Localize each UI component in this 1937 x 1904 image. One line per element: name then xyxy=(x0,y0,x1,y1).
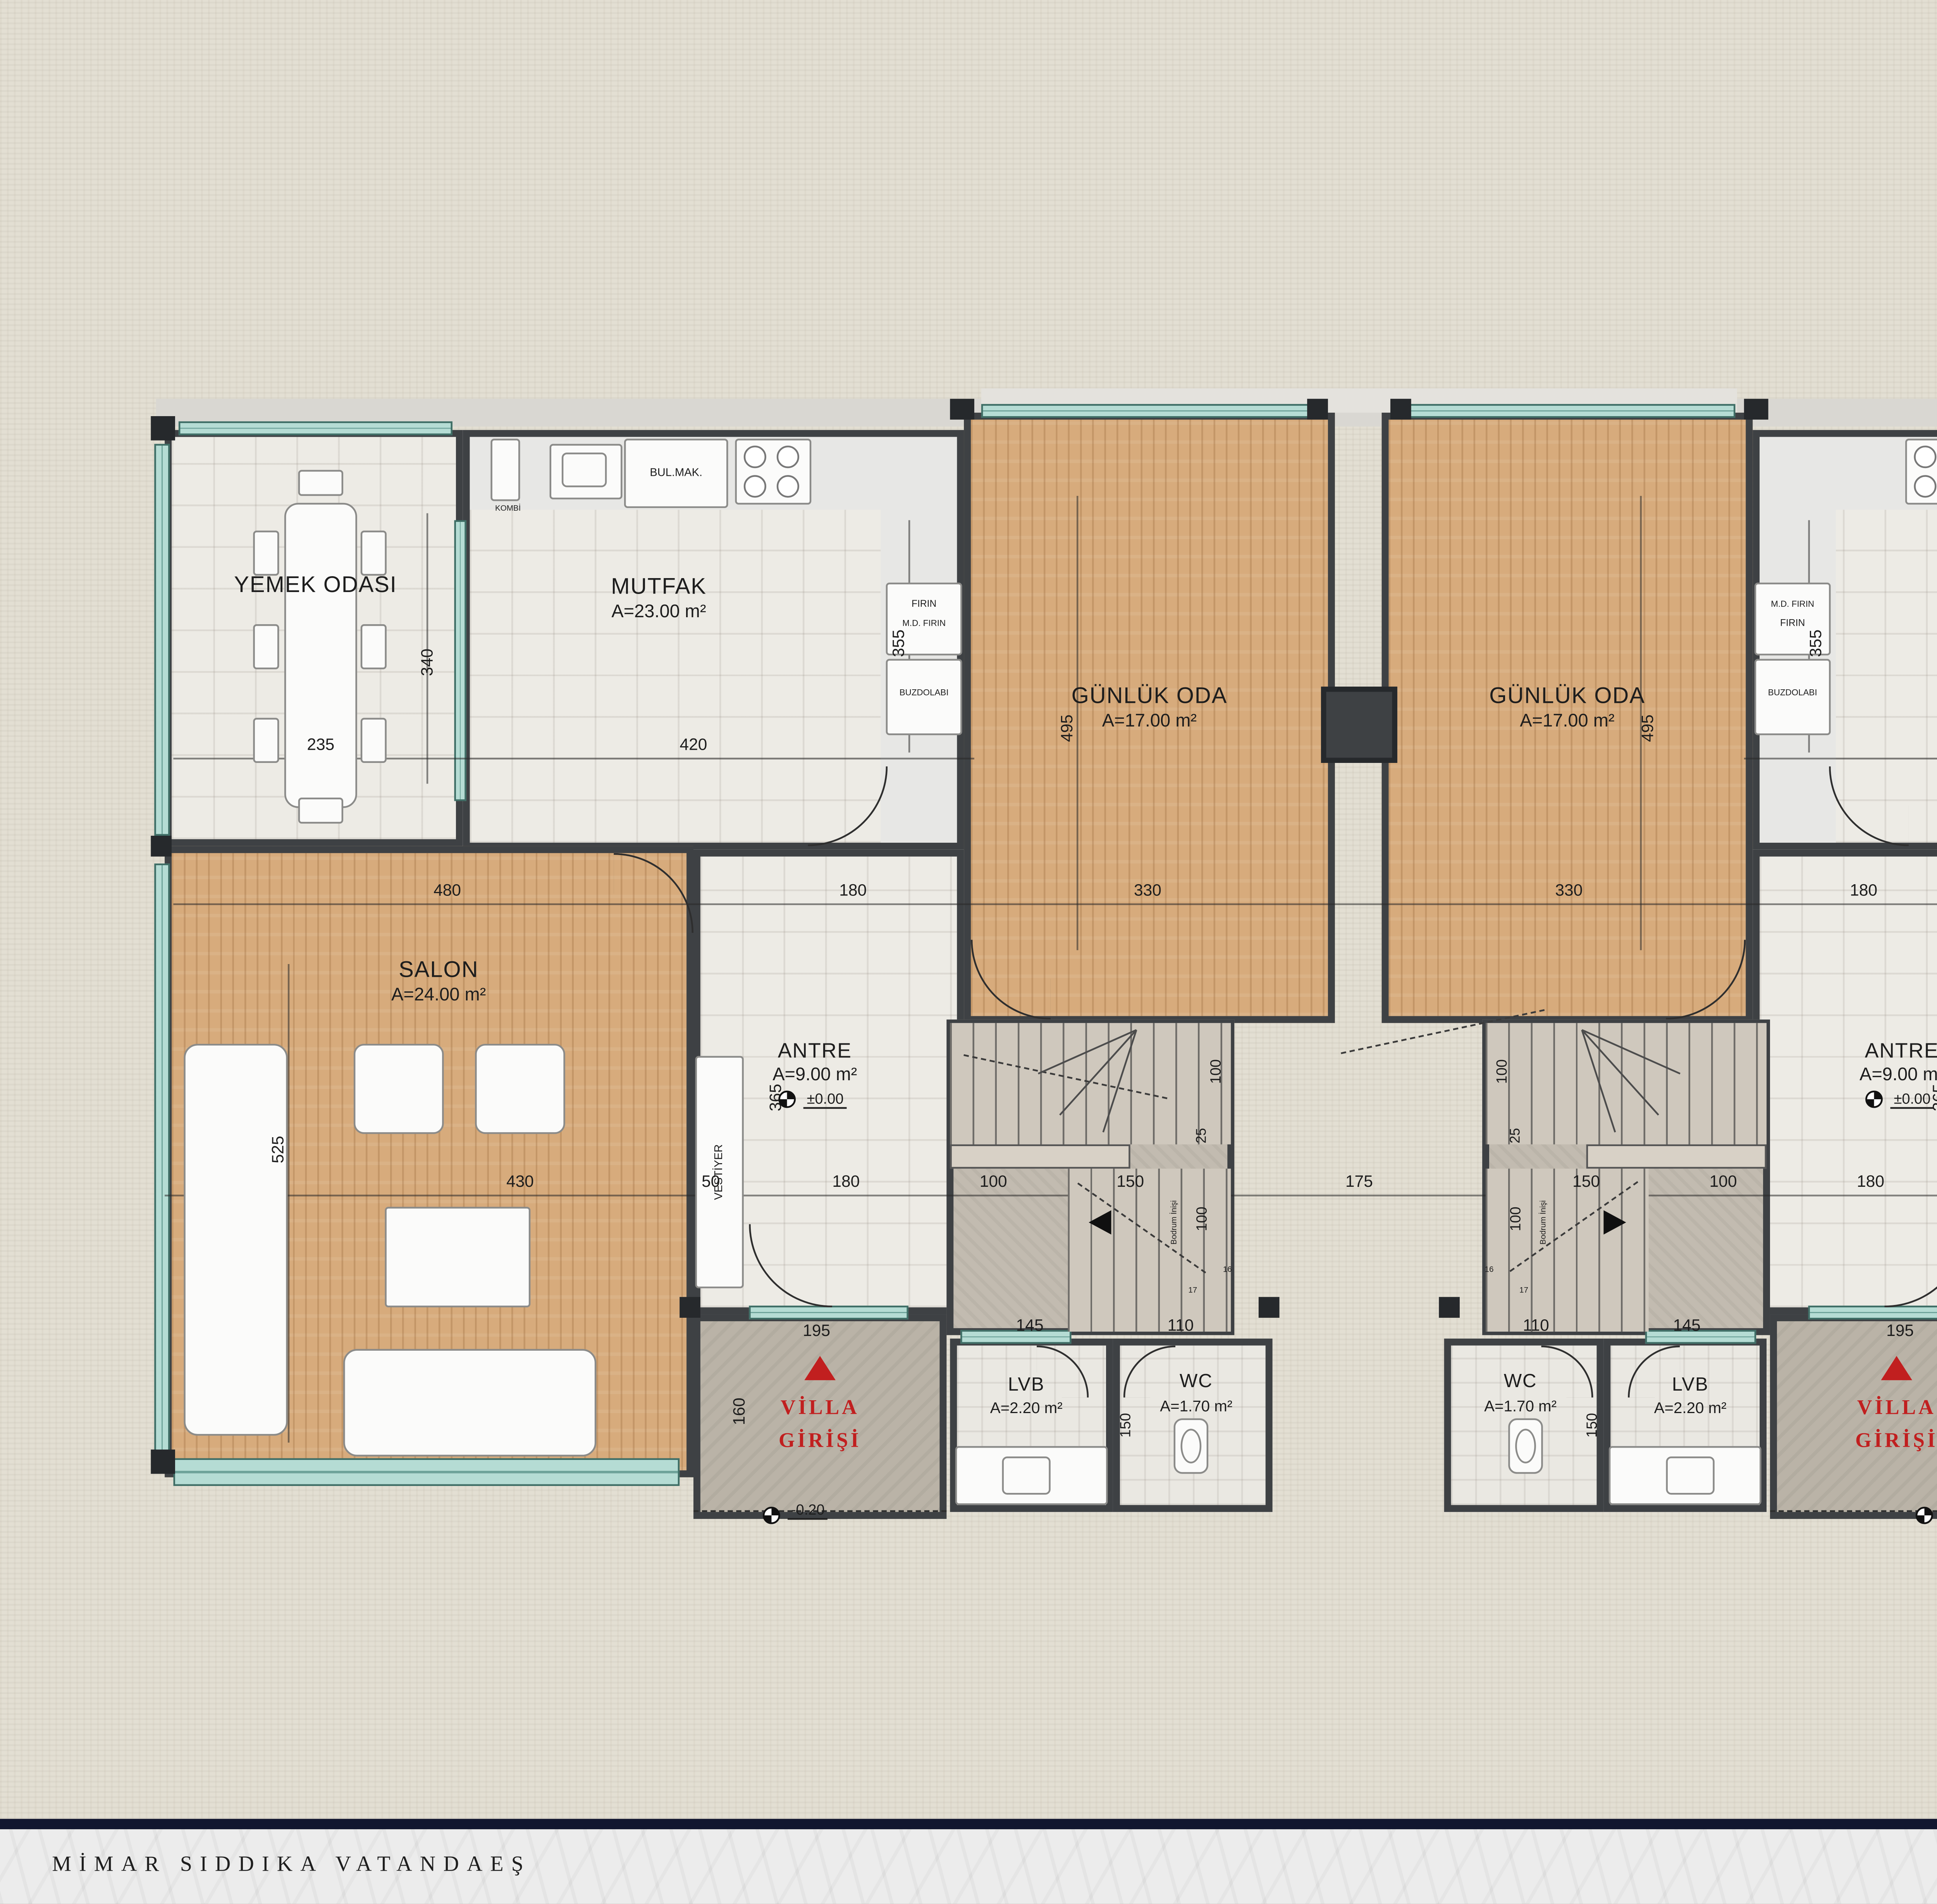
dim-525: 525 xyxy=(270,1136,289,1163)
divider-bar xyxy=(0,1819,1937,1829)
label-giris1-left: VİLLA xyxy=(781,1395,860,1421)
dim-100: 100 xyxy=(1207,1059,1224,1084)
dim-line xyxy=(288,964,289,1443)
elevation-entrance-left: -0.20 xyxy=(788,1501,828,1520)
dim-line xyxy=(165,1195,1937,1196)
area-lvb-left: A=2.20 m² xyxy=(990,1399,1063,1417)
window-yemek-left-side xyxy=(154,444,170,836)
dim-355: 355 xyxy=(890,630,909,657)
dim-100: 100 xyxy=(1710,1173,1737,1192)
dim-235: 235 xyxy=(307,736,334,755)
label-antre-left: ANTRE xyxy=(778,1039,852,1063)
stair-upper-flight-left xyxy=(950,1023,1231,1144)
dim-100: 100 xyxy=(1193,1207,1210,1231)
dim-330: 330 xyxy=(1134,882,1161,901)
dim-430: 430 xyxy=(506,1173,534,1192)
column-block xyxy=(950,399,974,420)
dim-355: 355 xyxy=(1807,630,1826,657)
stair-upper-flight-right xyxy=(1486,1023,1767,1144)
dim-100: 100 xyxy=(1507,1207,1524,1231)
armchair xyxy=(475,1044,565,1134)
elevation-symbol xyxy=(763,1507,780,1524)
label-firin-left: FIRIN xyxy=(912,600,936,610)
lvb-sink xyxy=(1002,1456,1051,1494)
stair-landing-left xyxy=(950,1145,1130,1169)
threshold-right xyxy=(1770,1510,1937,1512)
sofa xyxy=(343,1349,596,1456)
chair xyxy=(298,798,343,824)
label-bodrum-left: Bodrum İnişi xyxy=(1169,1200,1178,1245)
dim-17: 17 xyxy=(1519,1286,1528,1294)
entrance-triangle-right xyxy=(1881,1356,1912,1380)
chair xyxy=(298,470,343,496)
chair xyxy=(361,624,387,669)
elevation-symbol xyxy=(778,1091,796,1108)
entrance-sill-left xyxy=(749,1306,908,1320)
elevation-ground-left: ±0.00 xyxy=(803,1090,847,1109)
column-block xyxy=(1744,399,1768,420)
plan-canvas: YEMEK ODASI MUTFAK A=23.00 m² GÜNLÜK ODA… xyxy=(0,0,1937,1819)
label-wc-right: WC xyxy=(1504,1372,1537,1393)
chair xyxy=(253,718,279,763)
label-firin-right: FIRIN xyxy=(1780,619,1805,630)
dim-150: 150 xyxy=(1116,1413,1134,1437)
dim-100: 100 xyxy=(1493,1059,1510,1084)
stair-direction-arrow xyxy=(1089,1210,1111,1235)
column-block xyxy=(151,416,175,441)
label-buzdolabi-right: BUZDOLABI xyxy=(1768,689,1817,699)
dim-16: 16 xyxy=(1485,1265,1494,1274)
dim-160: 160 xyxy=(731,1398,750,1425)
area-antre-right: A=9.00 m² xyxy=(1860,1065,1937,1086)
window-lvb-right xyxy=(1645,1330,1756,1344)
dim-330: 330 xyxy=(1555,882,1583,901)
dim-150: 150 xyxy=(1583,1413,1600,1437)
dim-110: 110 xyxy=(1168,1317,1194,1336)
party-wall-connector xyxy=(1321,687,1397,763)
dim-180: 180 xyxy=(832,1173,860,1192)
label-antre-right: ANTRE xyxy=(1865,1039,1937,1063)
elevation-symbol xyxy=(1865,1091,1883,1108)
label-bulmak-left: BUL.MAK. xyxy=(650,467,702,479)
dim-340: 340 xyxy=(419,649,438,676)
wc-toilet-bowl xyxy=(1515,1429,1536,1463)
column-block xyxy=(151,836,172,857)
label-salon-left: SALON xyxy=(399,956,478,982)
dim-180: 180 xyxy=(1850,882,1877,901)
stair-landing-right xyxy=(1586,1145,1767,1169)
label-buzdolabi-left: BUZDOLABI xyxy=(900,689,949,699)
label-kombi-left: KOMBİ xyxy=(495,504,521,512)
elevation-symbol xyxy=(1916,1507,1933,1524)
label-gunluk-right: GÜNLÜK ODA xyxy=(1489,682,1645,708)
stair-lower-flight-right xyxy=(1486,1169,1649,1332)
column-block xyxy=(151,1450,175,1474)
elevation-ground-right: ±0.00 xyxy=(1890,1090,1934,1109)
column-block xyxy=(1307,399,1328,420)
window-yemek-left-top xyxy=(179,421,452,435)
dim-420: 420 xyxy=(680,736,707,755)
chair xyxy=(361,718,387,763)
dim-110: 110 xyxy=(1523,1317,1549,1336)
chair xyxy=(253,530,279,575)
area-salon-left: A=24.00 m² xyxy=(391,985,486,1006)
sofa xyxy=(184,1044,288,1436)
kombi-unit xyxy=(490,439,520,501)
coffee-table xyxy=(385,1207,530,1308)
area-wc-right: A=1.70 m² xyxy=(1484,1398,1557,1415)
area-gunluk-right: A=17.00 m² xyxy=(1520,711,1614,732)
dim-480: 480 xyxy=(434,882,461,901)
label-mutfak-left: MUTFAK xyxy=(611,573,707,599)
dim-150: 150 xyxy=(1572,1173,1600,1192)
dim-175: 175 xyxy=(1345,1173,1373,1192)
chair xyxy=(253,624,279,669)
label-mdfirin-right: M.D. FIRIN xyxy=(1771,600,1814,610)
column-block xyxy=(679,1297,700,1318)
area-antre-left: A=9.00 m² xyxy=(772,1065,857,1086)
label-giris1-right: VİLLA xyxy=(1857,1395,1936,1421)
dim-line xyxy=(174,903,1937,905)
label-lvb-right: LVB xyxy=(1672,1375,1709,1396)
dim-180: 180 xyxy=(1857,1173,1884,1192)
armchair xyxy=(354,1044,444,1134)
dim-50: 50 xyxy=(702,1173,720,1192)
entrance-triangle-left xyxy=(804,1356,836,1380)
sink-basin xyxy=(562,453,607,487)
lvb-sink xyxy=(1666,1456,1714,1494)
label-wc-left: WC xyxy=(1180,1372,1213,1393)
window-gunluk-right-top xyxy=(1395,404,1735,418)
stove-icon xyxy=(735,439,811,504)
dim-195: 195 xyxy=(803,1322,830,1341)
area-gunluk-left: A=17.00 m² xyxy=(1102,711,1197,732)
dim-100: 100 xyxy=(980,1173,1007,1192)
architect-name: MİMAR SIDDIKA VATANDAEŞ xyxy=(52,1852,531,1878)
dim-180: 180 xyxy=(839,882,867,901)
label-lvb-left: LVB xyxy=(1008,1375,1045,1396)
column-block xyxy=(1439,1297,1460,1318)
label-giris2-left: GİRİŞİ xyxy=(779,1428,861,1454)
window-salon-left-side xyxy=(154,864,170,1456)
dim-16: 16 xyxy=(1223,1265,1232,1274)
dim-25: 25 xyxy=(1194,1128,1209,1143)
window-salon-left-bottom xyxy=(174,1458,680,1486)
dim-line xyxy=(1744,758,1937,759)
wc-toilet-bowl xyxy=(1180,1429,1201,1463)
dim-17: 17 xyxy=(1188,1286,1197,1294)
dim-150: 150 xyxy=(1116,1173,1144,1192)
column-block xyxy=(1390,399,1411,420)
area-lvb-right: A=2.20 m² xyxy=(1654,1399,1727,1417)
area-mutfak-left: A=23.00 m² xyxy=(611,602,706,623)
label-bodrum-right: Bodrum İnişi xyxy=(1539,1200,1547,1245)
dim-195: 195 xyxy=(1886,1322,1914,1341)
dim-495: 495 xyxy=(1639,714,1658,742)
entrance-sill-right xyxy=(1808,1306,1937,1320)
dim-145: 145 xyxy=(1016,1317,1044,1336)
stair-direction-arrow xyxy=(1603,1210,1626,1235)
footer: MİMAR SIDDIKA VATANDAEŞ GİRAYHAN MİMARLI… xyxy=(0,1829,1937,1904)
label-gunluk-left: GÜNLÜK ODA xyxy=(1072,682,1228,708)
area-wc-left: A=1.70 m² xyxy=(1160,1398,1232,1415)
chair xyxy=(361,530,387,575)
dining-table xyxy=(284,503,357,808)
label-mdfirin-left: M.D. FIRIN xyxy=(902,619,946,630)
floor-plan-sheet: YEMEK ODASI MUTFAK A=23.00 m² GÜNLÜK ODA… xyxy=(0,0,1937,1904)
label-yemek-left: YEMEK ODASI xyxy=(234,572,397,597)
dim-495: 495 xyxy=(1058,714,1077,742)
dim-145: 145 xyxy=(1673,1317,1701,1336)
label-giris2-right: GİRİŞİ xyxy=(1855,1428,1937,1454)
column-block xyxy=(1259,1297,1280,1318)
window-gunluk-left-top xyxy=(981,404,1321,418)
dim-25: 25 xyxy=(1507,1128,1523,1143)
